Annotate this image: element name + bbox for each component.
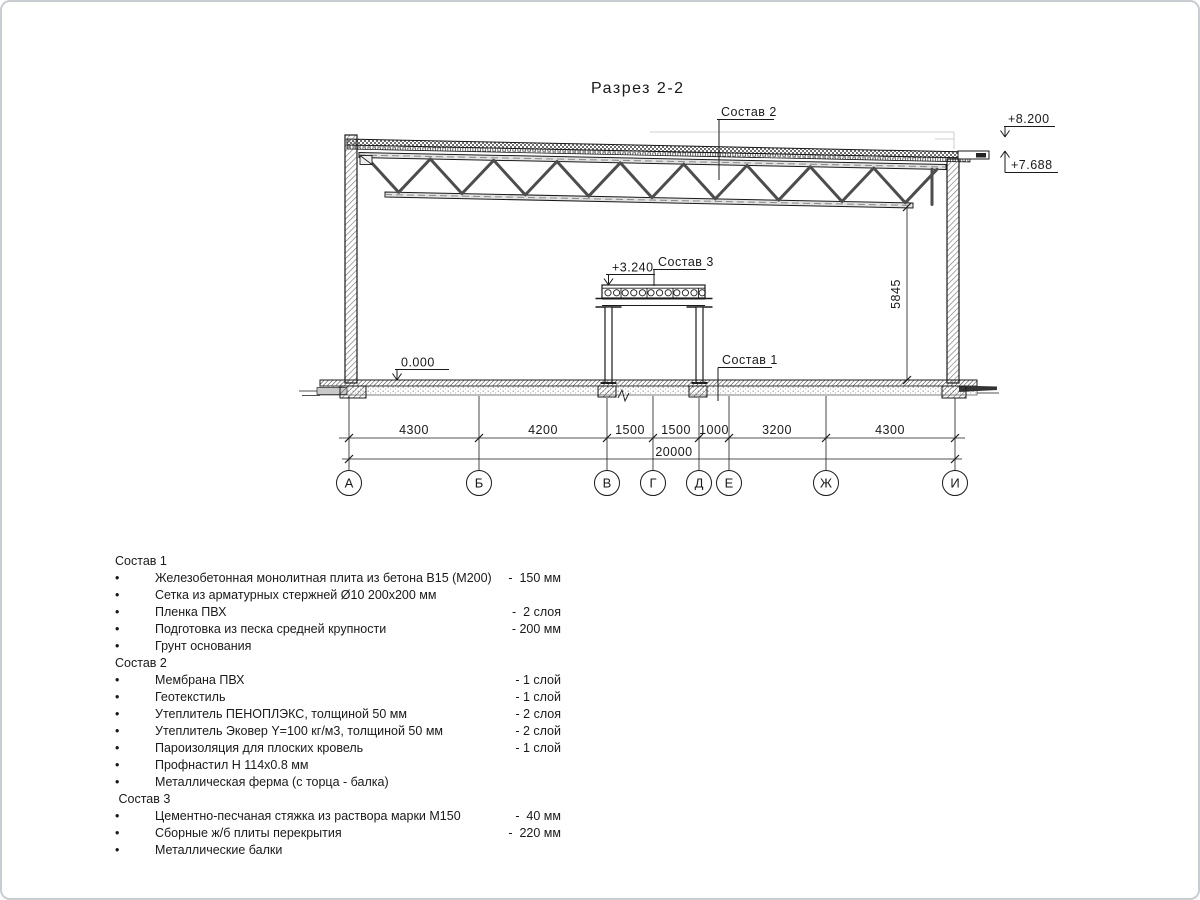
legend-item: Геотекстиль - 1 слой <box>115 689 561 706</box>
bullet-icon <box>115 757 155 774</box>
section-drawing: Разрез 2-2 <box>2 2 1198 542</box>
dim-g-d: 1500 <box>661 423 691 437</box>
bullet-icon <box>115 706 155 723</box>
mezzanine <box>596 285 713 383</box>
legend-item: Металлические балки <box>115 842 561 859</box>
mezzanine-column-left <box>605 307 612 383</box>
elevation-floor-value: 0.000 <box>401 356 435 370</box>
axis-d: Д <box>695 476 704 491</box>
floor-concrete-band <box>320 380 977 386</box>
dimension-line-bays: 4300 4200 1500 1500 1000 3200 4300 <box>339 423 965 442</box>
dim-b-v: 4200 <box>528 423 558 437</box>
bullet-icon <box>115 570 155 587</box>
mezzanine-beams <box>596 299 713 308</box>
legend-header-sostav3: Состав 3 <box>115 791 561 808</box>
legend: Состав 1 Железобетонная монолитная плита… <box>115 553 561 859</box>
axis-i: И <box>950 476 959 491</box>
elevation-mezzanine-value: +3.240 <box>612 261 654 275</box>
legend-item: Профнастил Н 114x0.8 мм <box>115 757 561 774</box>
sostav1-label: Состав 1 <box>722 353 778 367</box>
dim-a-b: 4300 <box>399 423 429 437</box>
section-title: Разрез 2-2 <box>591 80 685 97</box>
vertical-dimension: 5845 <box>889 203 911 384</box>
bullet-icon <box>115 621 155 638</box>
legend-header-sostav2: Состав 2 <box>115 655 561 672</box>
bullet-icon <box>115 672 155 689</box>
bullet-icon <box>115 638 155 655</box>
legend-item: Цементно-песчаная стяжка из раствора мар… <box>115 808 561 825</box>
elevation-roof-bottom: +7.688 <box>1001 151 1059 173</box>
legend-item: Сборные ж/б плиты перекрытия - 220 мм <box>115 825 561 842</box>
legend-header-sostav1: Состав 1 <box>115 553 561 570</box>
legend-item: Металлическая ферма (с торца - балка) <box>115 774 561 791</box>
vertical-dim-value: 5845 <box>889 279 903 309</box>
bullet-icon <box>115 723 155 740</box>
axis-v: В <box>603 476 612 491</box>
axis-e: Е <box>725 476 734 491</box>
dimension-line-total: 20000 <box>342 445 962 463</box>
bullet-icon <box>115 740 155 757</box>
bullet-icon <box>115 825 155 842</box>
legend-item: Подготовка из песка средней крупности - … <box>115 621 561 638</box>
roof-truss <box>359 153 946 209</box>
bullet-icon <box>115 808 155 825</box>
floor-slab <box>299 380 999 401</box>
axis-b: Б <box>475 476 484 491</box>
elevation-roof-top-value: +8.200 <box>1008 112 1050 126</box>
axis-a: А <box>345 476 354 491</box>
legend-item: Грунт основания <box>115 638 561 655</box>
axis-labels: А Б В Г Д Е Ж И <box>345 476 960 491</box>
dim-v-g: 1500 <box>615 423 645 437</box>
axis-zh: Ж <box>820 476 832 491</box>
leader-sostav2: Состав 2 <box>717 105 777 180</box>
dim-total: 20000 <box>655 445 692 459</box>
dim-zh-i: 4300 <box>875 423 905 437</box>
elevation-roof-bottom-value: +7.688 <box>1011 158 1053 172</box>
legend-item: Мембрана ПВХ - 1 слой <box>115 672 561 689</box>
elevation-mezzanine: +3.240 <box>604 261 655 286</box>
sostav3-label: Состав 3 <box>658 255 714 269</box>
legend-item: Пароизоляция для плоских кровель - 1 сло… <box>115 740 561 757</box>
floor-sand-band <box>320 386 977 395</box>
axis-g: Г <box>649 476 656 491</box>
bullet-icon <box>115 774 155 791</box>
leader-sostav3: Состав 3 <box>653 255 714 286</box>
drawing-sheet: Разрез 2-2 <box>0 0 1200 900</box>
dim-d-e: 1000 <box>699 423 729 437</box>
elevation-roof-top: +8.200 <box>1001 112 1056 137</box>
bullet-icon <box>115 842 155 859</box>
right-wall <box>947 159 959 383</box>
left-wall <box>345 135 357 383</box>
legend-item: Сетка из арматурных стержней Ø10 200x200… <box>115 587 561 604</box>
sostav2-label: Состав 2 <box>721 105 777 119</box>
legend-item: Утеплитель ПЕНОПЛЭКС, толщиной 50 мм - 2… <box>115 706 561 723</box>
roof-edge-cap-fill <box>976 153 986 158</box>
bullet-icon <box>115 689 155 706</box>
legend-item: Утеплитель Эковер Y=100 кг/м3, толщиной … <box>115 723 561 740</box>
legend-item: Железобетонная монолитная плита из бетон… <box>115 570 561 587</box>
dim-e-zh: 3200 <box>762 423 792 437</box>
legend-item: Пленка ПВХ - 2 слоя <box>115 604 561 621</box>
bullet-icon <box>115 604 155 621</box>
elevation-floor: 0.000 <box>393 356 450 381</box>
mezzanine-column-right <box>696 307 703 383</box>
bullet-icon <box>115 587 155 604</box>
